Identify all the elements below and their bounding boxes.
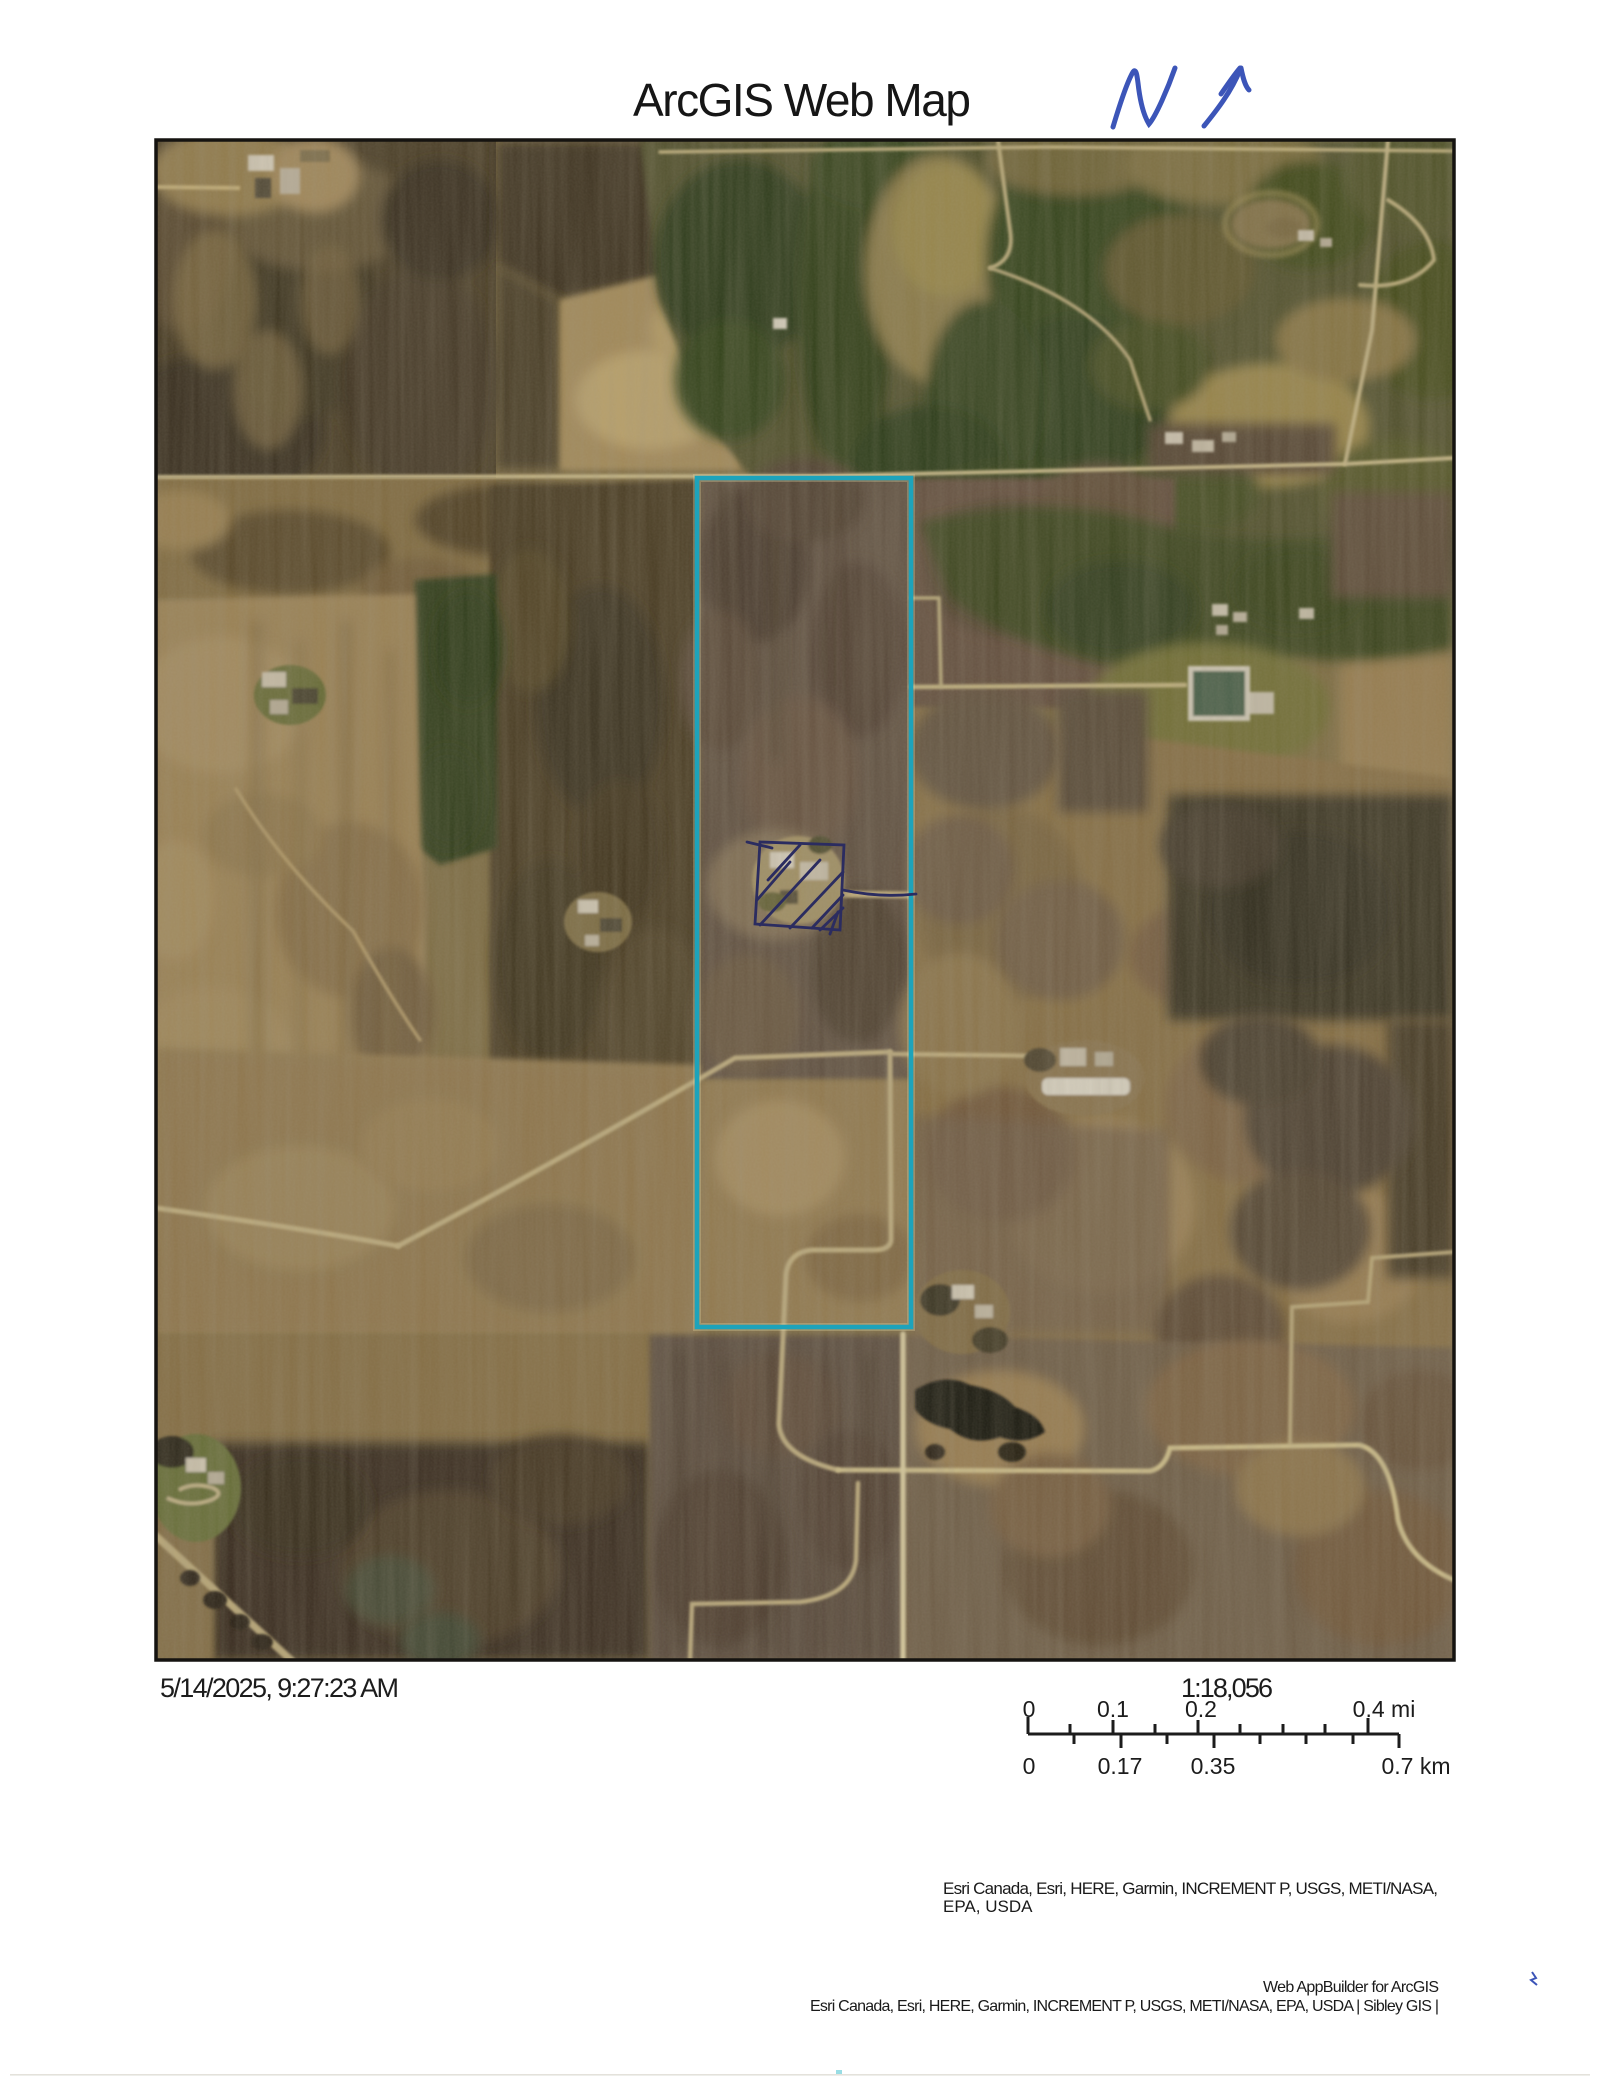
svg-text:0: 0 xyxy=(1023,1696,1036,1722)
svg-text:0: 0 xyxy=(1023,1753,1036,1779)
svg-text:0.7 km: 0.7 km xyxy=(1381,1753,1450,1779)
svg-text:Esri Canada, Esri, HERE, Garmi: Esri Canada, Esri, HERE, Garmin, INCREME… xyxy=(943,1879,1438,1898)
svg-text:5/14/2025, 9:27:23 AM: 5/14/2025, 9:27:23 AM xyxy=(160,1673,399,1703)
svg-text:0.4 mi: 0.4 mi xyxy=(1353,1696,1416,1722)
svg-text:Esri Canada, Esri, HERE, Garmi: Esri Canada, Esri, HERE, Garmin, INCREME… xyxy=(810,1998,1439,2015)
svg-text:0.1: 0.1 xyxy=(1097,1696,1129,1722)
svg-text:0.35: 0.35 xyxy=(1191,1753,1236,1779)
svg-text:Web AppBuilder for ArcGIS: Web AppBuilder for ArcGIS xyxy=(1263,1979,1439,1996)
svg-text:0.17: 0.17 xyxy=(1098,1753,1143,1779)
svg-text:0.2: 0.2 xyxy=(1185,1696,1217,1722)
svg-text:EPA, USDA: EPA, USDA xyxy=(943,1897,1033,1916)
svg-text:ArcGIS Web Map: ArcGIS Web Map xyxy=(633,74,971,126)
